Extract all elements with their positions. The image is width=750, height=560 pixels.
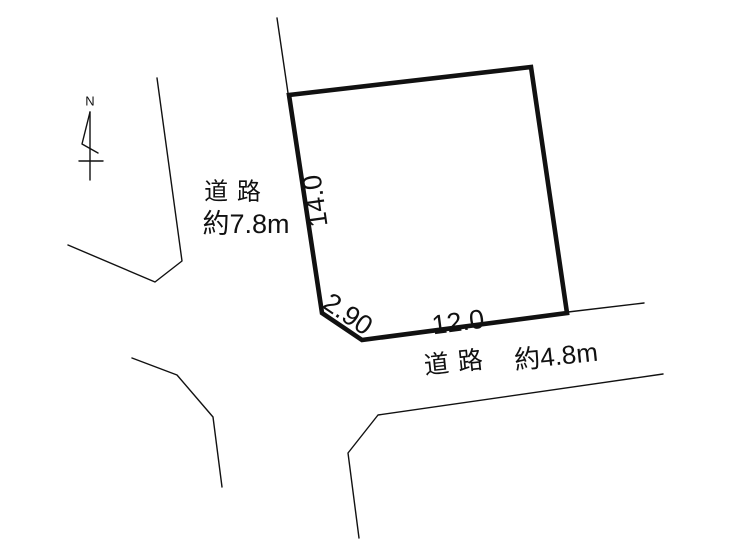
road-west-name-label: 道 路: [204, 179, 262, 206]
north-compass-icon: N: [79, 94, 103, 181]
survey-drawing: N 道 路 約7.8m 道 路 約4.8m 14.0 2.90 12.0: [0, 0, 750, 560]
dimension-west-side: 14.0: [296, 173, 333, 229]
road-west-far-edge-line: [68, 78, 182, 282]
road-west-width-label: 約7.8m: [202, 209, 289, 239]
road-south-width-label: 約4.8m: [513, 337, 599, 376]
intersection-southwest-edge-line: [132, 358, 222, 487]
road-west-near-edge-upper-line: [277, 18, 288, 93]
road-south-near-edge-line: [568, 303, 644, 312]
compass-north-label: N: [85, 94, 94, 109]
road-south-far-edge-line: [348, 374, 663, 538]
land-plot-diagram: N 道 路 約7.8m 道 路 約4.8m 14.0 2.90 12.0: [0, 0, 750, 560]
dimension-south-side: 12.0: [430, 304, 486, 341]
road-south-name-label: 道 路: [423, 346, 486, 380]
